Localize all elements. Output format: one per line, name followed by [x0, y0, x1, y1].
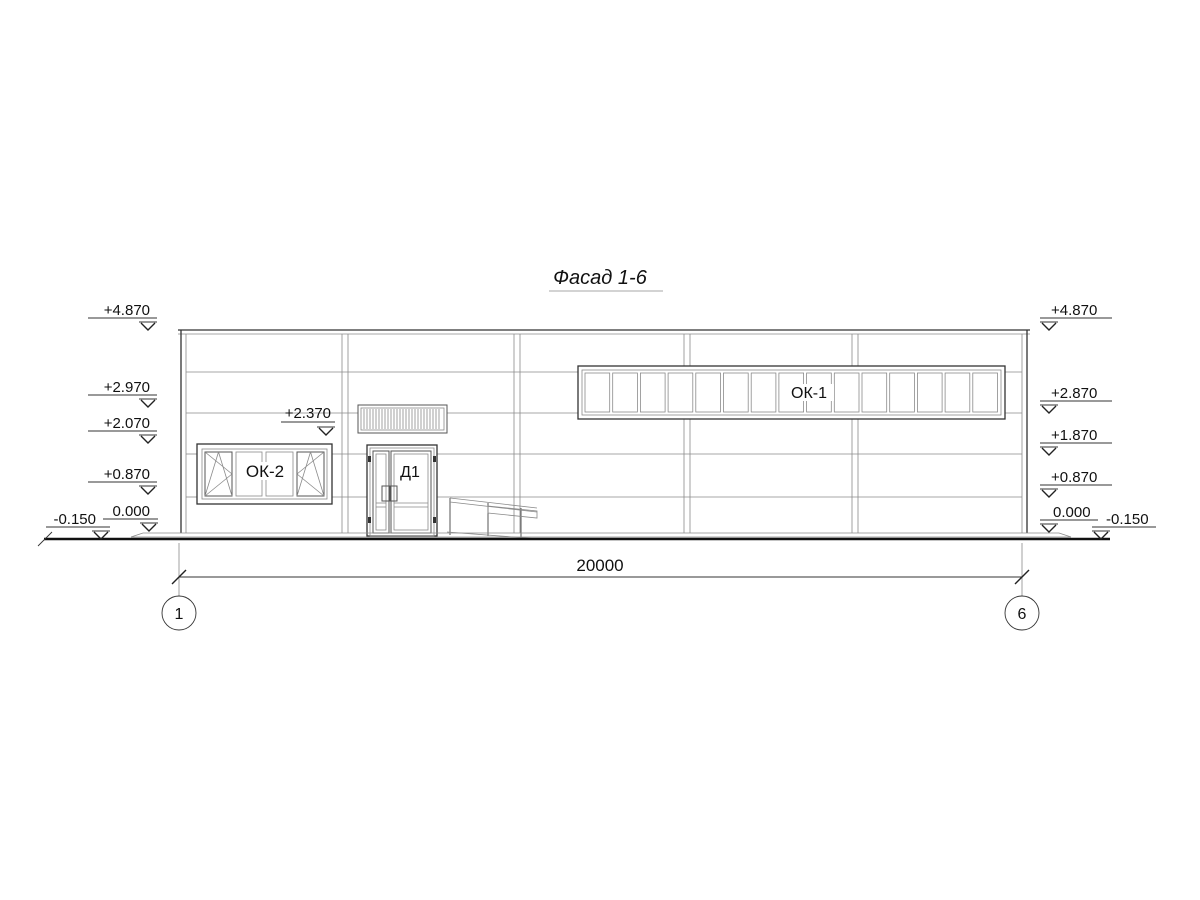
- door-hinge-icon: [368, 517, 371, 523]
- dimension-line-total: 20000: [172, 543, 1029, 596]
- elevation-arrow-icon: [1042, 406, 1056, 413]
- elevation-markers-left: +4.870 +2.970 +2.070 +0.870 0.000: [46, 302, 158, 539]
- elevation-arrow-icon: [1042, 525, 1056, 532]
- plinth: [131, 533, 1071, 537]
- elevation-arrow-icon: [141, 323, 155, 330]
- elevation-arrow-icon: [1042, 490, 1056, 497]
- svg-text:+0.870: +0.870: [104, 466, 150, 483]
- svg-text:6: 6: [1018, 606, 1027, 623]
- elevation-marker: +4.870: [88, 302, 157, 330]
- panel-seams: [186, 372, 1022, 497]
- elevation-marker: +2.870: [1040, 385, 1112, 413]
- casement-symbol-left: [205, 452, 232, 496]
- ribbon-window-ok1: ОК-1: [578, 366, 1005, 419]
- elevation-marker: +2.070: [88, 415, 157, 443]
- louver-grille: [358, 405, 447, 433]
- elevation-marker: 0.000: [1040, 504, 1098, 532]
- elevation-arrow-icon: [319, 428, 333, 435]
- svg-text:-0.150: -0.150: [53, 511, 96, 528]
- elevation-marker: +0.870: [1040, 469, 1112, 497]
- elevation-arrow-icon: [141, 400, 155, 407]
- elevation-marker: -0.150: [1092, 511, 1156, 539]
- title-text: Фасад 1-6: [553, 267, 648, 289]
- door-d1: Д1: [367, 445, 437, 536]
- window-ok2: ОК-2: [197, 444, 332, 504]
- svg-text:+2.370: +2.370: [285, 405, 331, 422]
- svg-text:+0.870: +0.870: [1051, 469, 1097, 486]
- axis-bubble-1: 1: [162, 596, 196, 630]
- door-d1-label: Д1: [400, 464, 420, 481]
- elevation-arrow-icon: [1042, 448, 1056, 455]
- dimension-text: 20000: [576, 556, 623, 575]
- elevation-marker: +1.870: [1040, 427, 1112, 455]
- svg-text:+2.070: +2.070: [104, 415, 150, 432]
- elevation-marker: 0.000: [103, 503, 158, 531]
- canopy-elevation-marker: +2.370: [281, 405, 335, 435]
- door-hinge-icon: [368, 456, 371, 462]
- svg-text:-0.150: -0.150: [1106, 511, 1149, 528]
- axis-bubble-6: 6: [1005, 596, 1039, 630]
- elevation-arrow-icon: [1042, 323, 1056, 330]
- door-hinge-icon: [433, 456, 436, 462]
- facade-drawing: Фасад 1-6: [0, 0, 1200, 900]
- elevation-markers-right: +4.870 +2.870 +1.870 +0.870 0.000: [1040, 302, 1156, 539]
- door-hinge-icon: [433, 517, 436, 523]
- svg-text:0.000: 0.000: [1053, 504, 1091, 521]
- elevation-arrow-icon: [141, 436, 155, 443]
- svg-text:+2.970: +2.970: [104, 379, 150, 396]
- svg-text:0.000: 0.000: [112, 503, 150, 520]
- building-outline: [178, 330, 1030, 533]
- elevation-arrow-icon: [141, 487, 155, 494]
- svg-text:+1.870: +1.870: [1051, 427, 1097, 444]
- door-handle-left: [382, 486, 389, 501]
- svg-text:+2.870: +2.870: [1051, 385, 1097, 402]
- svg-text:1: 1: [175, 606, 184, 623]
- elevation-marker: -0.150: [46, 511, 110, 539]
- svg-text:+4.870: +4.870: [104, 302, 150, 319]
- elevation-marker: +4.870: [1040, 302, 1112, 330]
- svg-text:+4.870: +4.870: [1051, 302, 1097, 319]
- ground-line: [38, 532, 1110, 546]
- window-ok1-label: ОК-1: [791, 385, 827, 402]
- casement-symbol-right: [297, 452, 324, 496]
- drawing-title: Фасад 1-6: [549, 267, 663, 291]
- elevation-arrow-icon: [142, 524, 156, 531]
- window-ok2-label: ОК-2: [246, 462, 284, 481]
- elevation-marker: +2.970: [88, 379, 157, 407]
- elevation-marker: +0.870: [88, 466, 157, 494]
